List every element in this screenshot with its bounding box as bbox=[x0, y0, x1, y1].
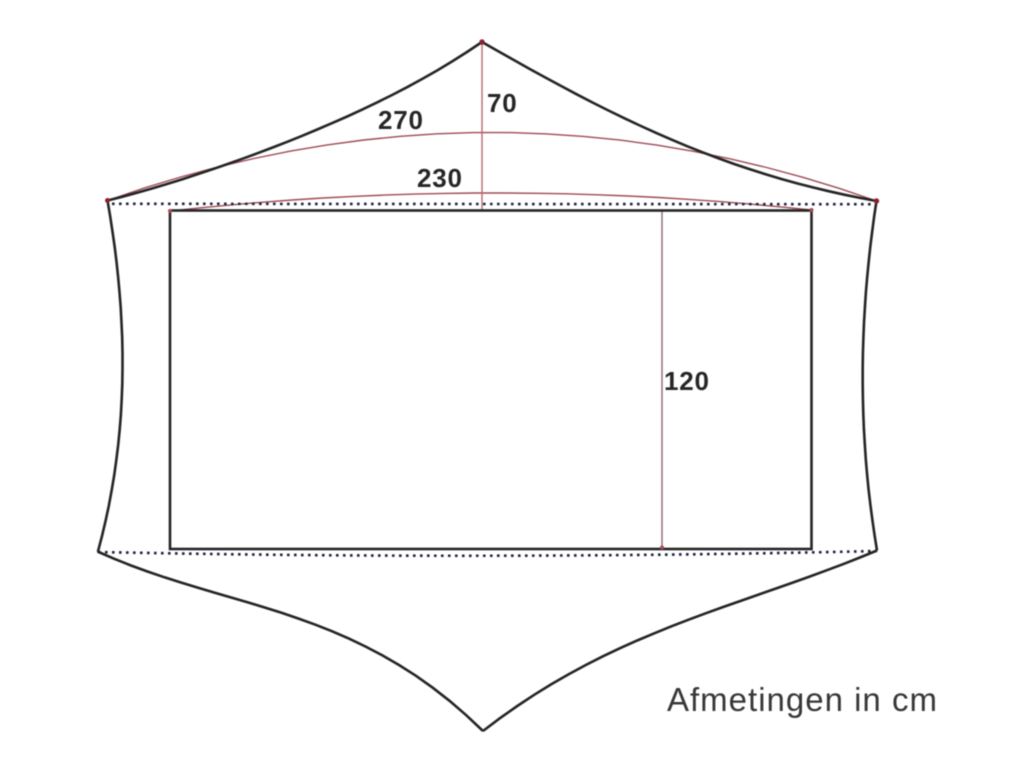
svg-text:Afmetingen in cm: Afmetingen in cm bbox=[667, 681, 938, 718]
svg-text:230: 230 bbox=[417, 163, 463, 193]
svg-text:70: 70 bbox=[487, 88, 518, 118]
svg-text:270: 270 bbox=[378, 105, 424, 135]
svg-text:120: 120 bbox=[664, 366, 710, 396]
